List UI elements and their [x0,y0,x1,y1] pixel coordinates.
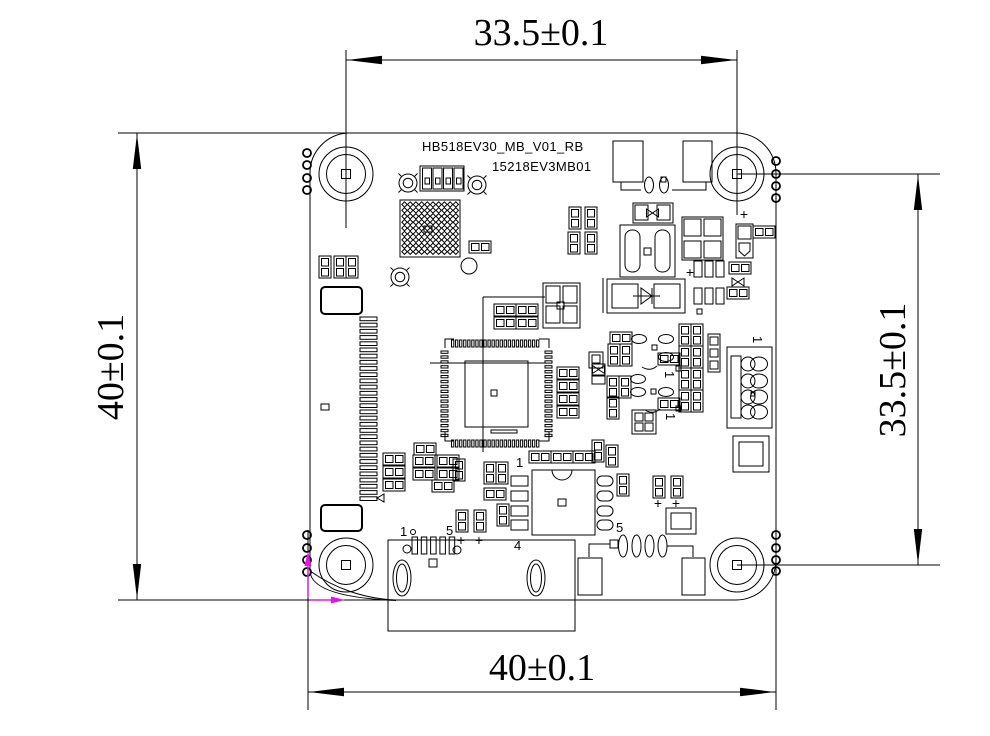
dimension-right: 33.5±0.1 [737,174,940,565]
arrowhead [914,529,922,564]
dimension-top-value: 33.5±0.1 [474,12,609,54]
soic8-center-marker [558,499,566,506]
bowtie-component [633,203,673,223]
board-subtitle: 15218EV3MB01 [492,159,591,174]
arrowhead [133,564,141,599]
mounting-hole-bottom-left [319,538,373,592]
plus-marker: + [654,495,662,511]
pin5-label: 5 [446,523,453,538]
fpc-tab-bottom [321,505,362,531]
test-point [468,176,487,195]
dimension-left: 40±0.1 [90,133,398,600]
test-point-plain [461,258,477,274]
origin-marker [305,551,397,604]
soic8-ic: 1 4 5 [511,455,623,553]
pin1-label: 1 [750,336,765,343]
leader-line [642,366,657,369]
board-title: HB518EV30_MB_V01_RB [422,139,584,154]
plus-marker: + [686,264,694,280]
drawing-canvas: 33.5±0.1 40±0.1 33.5±0.1 40±0.1 [0,0,990,736]
arrowhead [701,56,736,64]
top-right-footprints [613,141,712,190]
soic8-pads [511,476,613,530]
arrowhead [740,688,775,696]
arrowhead [914,175,922,210]
dimension-bottom: 40±0.1 [308,530,776,710]
connector-4pin-right: 1 [727,336,772,428]
pin1-label: 1 [516,455,523,470]
qfp-center-marker [491,390,497,396]
mounting-holes [319,147,764,592]
test-point [399,174,418,193]
dimension-top: 33.5±0.1 [346,12,737,228]
qfp-ic [441,339,552,447]
dimension-right-value: 33.5±0.1 [872,303,914,438]
board-outline [310,133,776,600]
soic8-notch [552,470,572,480]
bga-balls [402,202,459,255]
diode-component: + [603,264,694,313]
dimension-left-value: 40±0.1 [90,314,132,420]
qfp-underline [491,430,517,433]
bottom-pads-traces [578,508,705,595]
pin1-triangle-marker [377,494,384,502]
usb-center-marker [429,559,437,567]
pad-ovals [619,535,668,557]
quad-pad-component-3 [632,410,656,434]
pin5-label: 5 [616,520,623,535]
plus-marker: + [475,532,483,548]
header-4pin-top [420,166,464,191]
test-point [391,268,410,287]
arrowhead [133,134,141,169]
origin-x-arrowhead [331,597,345,604]
corner-arc [310,572,396,601]
plus-marker: + [740,206,748,222]
pin1-label: 1 [663,413,678,420]
polarized-cap-top-right: + [736,206,753,258]
plus-marker: + [672,495,680,511]
pin1-label: 1 [662,371,677,378]
fpc-tab-top [321,287,362,314]
quad-pad-component [682,217,723,260]
pcb-mechanical-drawing: 33.5±0.1 40±0.1 33.5±0.1 40±0.1 [0,0,990,736]
arrowhead [347,56,382,64]
passive-components [319,177,775,532]
fpc-marker [321,404,329,410]
pin1-label: 1 [400,524,407,539]
bga-footprint [400,200,460,257]
board-title-block: HB518EV30_MB_V01_RB 15218EV3MB01 [422,139,591,174]
fpc-pins [360,317,377,501]
plus-marker: + [457,532,465,548]
inductor [620,225,675,277]
arrowhead [309,688,344,696]
component-below-connector [733,436,769,472]
quad-pad-component-2 [543,283,580,328]
dimension-bottom-value: 40±0.1 [489,647,595,689]
pad-trio-bracket [708,334,720,372]
fpc-connector [321,287,384,531]
